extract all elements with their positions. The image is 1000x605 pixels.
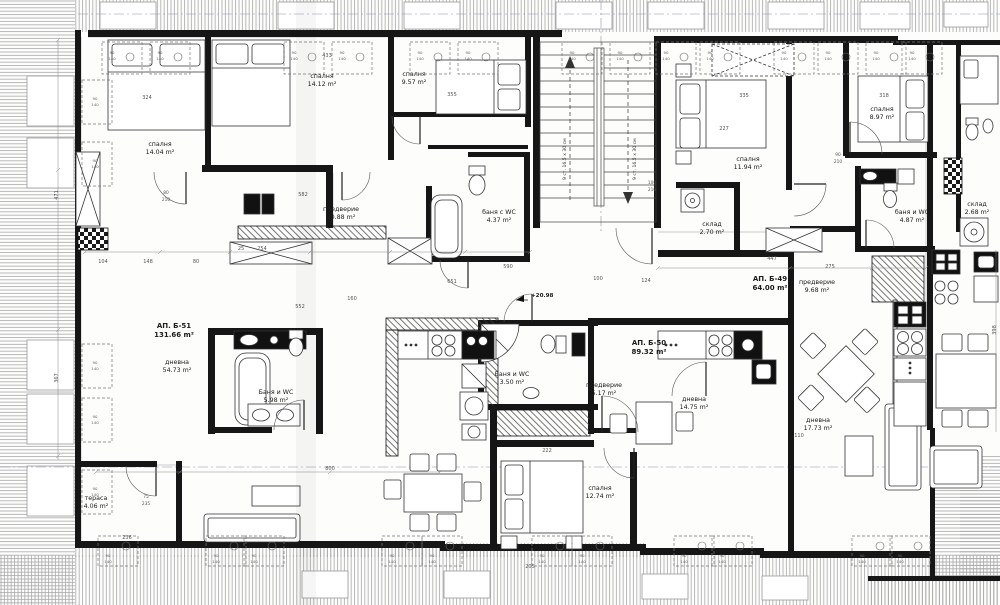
apartment-label: АП. Б-51 <box>157 322 191 330</box>
door-size-label: 90 <box>835 152 841 158</box>
window-size-label: 90 <box>874 50 879 55</box>
room-label: предверие <box>799 279 835 286</box>
room-label: баня с WC <box>482 208 516 216</box>
dimension-label: 110 <box>794 433 804 439</box>
room-area-label: 14.04 m² <box>146 149 175 156</box>
doors-layer <box>126 116 894 496</box>
floor-plan-page: спалня14.04 m²спалня14.12 m²спалня9.57 m… <box>0 0 1000 605</box>
room-area-label: 4.87 m² <box>900 217 925 224</box>
wardrobe <box>388 238 432 264</box>
window-size-label: 140 <box>104 559 112 564</box>
window-size-label: 140 <box>156 56 164 61</box>
room-label: дневна <box>682 396 706 403</box>
window-size-label: 140 <box>416 56 424 61</box>
dimension-label: 398 <box>992 325 998 335</box>
dimension-label: 447 <box>767 256 777 262</box>
window-mark-icon <box>876 542 884 550</box>
room-area-label: 5.17 m² <box>592 390 617 397</box>
window-size-label: 140 <box>91 102 99 107</box>
window-size-label: 90 <box>466 50 471 55</box>
stair-note: 9 ст. 16.5 x 30 см <box>562 138 568 180</box>
door-size-label: 80 <box>163 190 169 196</box>
room-label: дневна <box>165 359 189 366</box>
window-size-label: 90 <box>580 553 585 558</box>
window-size-label: 140 <box>780 56 788 61</box>
dimension-label: 80 <box>193 259 199 265</box>
door-size-label: 210 <box>648 187 656 193</box>
sofa <box>930 446 982 488</box>
window-size-label: 90 <box>158 50 163 55</box>
cabinet <box>262 194 274 214</box>
room-area-label: 3.50 m² <box>500 379 525 386</box>
room-label: спалня <box>148 141 172 148</box>
room-area-label: 9.57 m² <box>402 79 427 86</box>
kitchen-counter <box>658 331 776 384</box>
apartment-label: АП. Б-50 <box>632 339 666 347</box>
dimension-label: 25 <box>238 246 244 252</box>
window-size-label: 90 <box>618 50 623 55</box>
window-size-label: 140 <box>616 56 624 61</box>
dimension-label: 222 <box>542 448 552 454</box>
toilet <box>541 335 566 353</box>
wardrobe <box>766 228 822 252</box>
window-size-label: 90 <box>390 553 395 558</box>
room-area-label: 4.37 m² <box>487 217 512 224</box>
dimension-label: 335 <box>739 93 749 99</box>
sink <box>523 388 539 399</box>
bathtub <box>431 195 462 258</box>
window-mark-icon <box>680 53 688 61</box>
kitchen-counter <box>932 250 998 304</box>
door-size-label: 100 <box>648 180 656 186</box>
room-area-label: 54.73 m² <box>163 367 192 374</box>
window-size-label: 140 <box>908 56 916 61</box>
floor-plan-canvas: спалня14.04 m²спалня14.12 m²спалня9.57 m… <box>0 0 1000 605</box>
duct-box <box>572 333 585 356</box>
apartment-area-label: 131.66 m² <box>154 331 194 339</box>
window-size-label: 140 <box>662 56 670 61</box>
window-size-label: 140 <box>896 559 904 564</box>
toilet <box>884 183 898 208</box>
room-area-label: 11.94 m² <box>734 164 763 171</box>
dimension-label: 160 <box>347 296 357 302</box>
window-size-label: 90 <box>570 50 575 55</box>
window-size-label: 90 <box>93 486 98 491</box>
window-size-label: 90 <box>898 553 903 558</box>
window-mark-icon <box>798 53 806 61</box>
window-size-label: 90 <box>430 553 435 558</box>
room-label: предверие <box>323 206 359 213</box>
washing-machine <box>898 169 914 184</box>
window-size-label: 140 <box>91 366 99 371</box>
sink <box>983 119 993 133</box>
door-size-label: 235 <box>142 501 150 507</box>
bed <box>436 60 526 114</box>
room-label: спалня <box>736 156 760 163</box>
chimney <box>944 158 962 194</box>
window-size-label: 140 <box>91 420 99 425</box>
staircase <box>540 42 656 222</box>
window-size-label: 90 <box>214 553 219 558</box>
window-size-label: 90 <box>708 50 713 55</box>
dimension-label: 651 <box>447 279 457 285</box>
room-label: спалня <box>588 485 612 492</box>
window-mark-icon <box>890 53 898 61</box>
room-area-label: 2.70 m² <box>700 229 725 236</box>
apartment-label: АП. Б-49 <box>753 275 787 283</box>
room-area-label: 8.97 m² <box>870 114 895 121</box>
elevation-mark: +20.98 <box>531 293 553 299</box>
window-size-label: 90 <box>252 553 257 558</box>
dimension-label: 590 <box>503 264 513 270</box>
room-label: склад <box>702 221 722 228</box>
washing-machine <box>681 189 704 212</box>
dimension-label: 205 <box>525 564 535 570</box>
dimension-label: 100 <box>593 276 603 282</box>
scan-artifact <box>296 0 316 605</box>
cabinet <box>244 194 260 214</box>
window-size-label: 140 <box>858 559 866 564</box>
room-label: баня и WC <box>895 208 930 216</box>
window-size-label: 140 <box>91 492 99 497</box>
room-area-label: 12.74 m² <box>586 493 615 500</box>
dimension-label: 471 <box>54 190 60 200</box>
window-size-label: 90 <box>93 158 98 163</box>
window-size-label: 140 <box>578 559 586 564</box>
window-size-label: 140 <box>538 559 546 564</box>
window-size-label: 90 <box>93 360 98 365</box>
bed <box>212 40 290 126</box>
window-size-label: 140 <box>428 559 436 564</box>
window-size-label: 140 <box>91 164 99 169</box>
window-mark-icon <box>634 53 642 61</box>
apartment-area-label: 64.00 m² <box>753 284 788 292</box>
window-size-label: 140 <box>706 56 714 61</box>
room-area-label: 5.98 m² <box>264 397 289 404</box>
dimension-label: 318 <box>879 93 889 99</box>
window-size-label: 90 <box>106 553 111 558</box>
dimension-label: 275 <box>825 264 835 270</box>
dining-table <box>384 454 481 531</box>
room-label: склад <box>967 201 987 208</box>
dimension-label: 104 <box>98 259 108 265</box>
room-area-label: 4.06 m² <box>84 503 109 510</box>
room-label: предверие <box>586 382 622 389</box>
room-area-label: 2.68 m² <box>965 209 990 216</box>
toilet <box>469 166 485 195</box>
dimension-label: 355 <box>447 92 457 98</box>
dimension-label: 124 <box>641 278 651 284</box>
coffee-table <box>845 436 873 476</box>
window-size-label: 90 <box>860 553 865 558</box>
dining-table <box>798 328 881 413</box>
window-size-label: 140 <box>824 56 832 61</box>
window-size-label: 90 <box>720 553 725 558</box>
stair-note: 9 ст. 16.5 x 30 см <box>632 138 638 180</box>
dining-table <box>936 334 996 427</box>
apartment-area-label: 89.32 m² <box>632 348 667 356</box>
room-area-label: 10.88 m² <box>327 214 356 221</box>
window-size-label: 140 <box>250 559 258 564</box>
room-area-label: 14.75 m² <box>680 404 709 411</box>
window-size-label: 140 <box>680 559 688 564</box>
vanity <box>860 169 896 184</box>
window-mark-icon <box>356 53 364 61</box>
window-size-label: 90 <box>910 50 915 55</box>
bed <box>108 40 205 130</box>
door-size-label: 210 <box>834 159 842 165</box>
window-size-label: 140 <box>388 559 396 564</box>
window-size-label: 90 <box>782 50 787 55</box>
sofa <box>204 514 300 542</box>
double-sink <box>248 404 300 426</box>
window-size-label: 90 <box>418 50 423 55</box>
window-size-label: 140 <box>464 56 472 61</box>
room-label: Баня и WC <box>259 389 294 396</box>
room-area-label: 9.68 m² <box>805 287 830 294</box>
toilet <box>966 118 978 140</box>
window-mark-icon <box>586 53 594 61</box>
dimension-label: 324 <box>142 95 152 101</box>
window-size-label: 90 <box>664 50 669 55</box>
window-size-label: 90 <box>540 553 545 558</box>
dimension-label: 227 <box>719 126 729 132</box>
bed <box>960 56 998 104</box>
dimension-label: 367 <box>54 373 60 383</box>
window-size-label: 90 <box>110 50 115 55</box>
kitchen-counter <box>894 302 926 426</box>
window-size-label: 90 <box>826 50 831 55</box>
window-mark-icon <box>914 542 922 550</box>
window-size-label: 90 <box>93 96 98 101</box>
window-size-label: 140 <box>568 56 576 61</box>
room-label: Баня и WC <box>495 371 530 378</box>
boiler <box>960 218 988 246</box>
bed <box>676 64 766 164</box>
window-size-label: 140 <box>718 559 726 564</box>
door-size-label: 75 <box>143 494 149 500</box>
coffee-table <box>252 486 300 506</box>
kitchen-counter <box>398 331 496 440</box>
dimension-label: 148 <box>143 259 153 265</box>
window-size-label: 90 <box>682 553 687 558</box>
room-label: спалня <box>402 71 426 78</box>
room-area-label: 17.73 m² <box>804 425 833 432</box>
window-size-label: 90 <box>340 50 345 55</box>
window-size-label: 140 <box>108 56 116 61</box>
window-size-label: 140 <box>338 56 346 61</box>
room-label: дневна <box>806 417 830 424</box>
dimension-label: 800 <box>325 466 335 472</box>
dimension-label: 254 <box>257 246 267 252</box>
room-label: спалня <box>870 106 894 113</box>
window-size-label: 90 <box>93 414 98 419</box>
window-size-label: 140 <box>212 559 220 564</box>
door-size-label: 210 <box>162 197 170 203</box>
window-size-label: 140 <box>872 56 880 61</box>
